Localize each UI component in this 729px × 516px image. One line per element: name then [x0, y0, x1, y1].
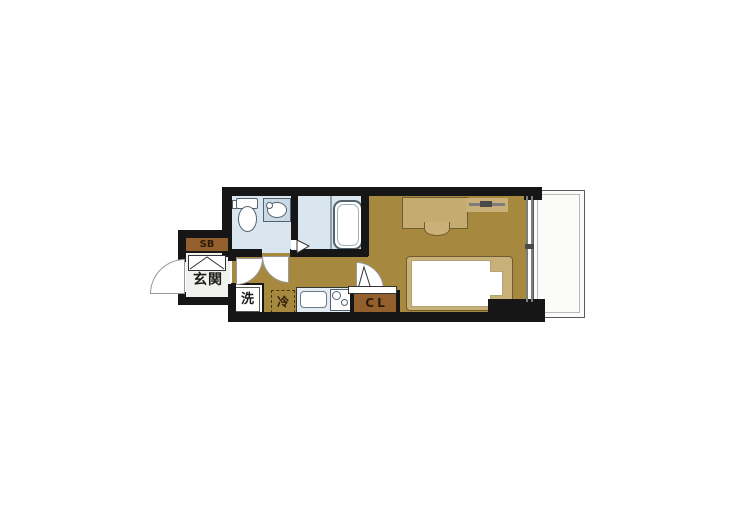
- chair: [424, 222, 450, 236]
- window-handle: [525, 244, 534, 249]
- bath-folding-door-icon: [296, 239, 311, 254]
- ac-unit-knob: [480, 201, 492, 207]
- entrance-label: 玄関: [186, 271, 230, 289]
- balcony-inner-line: [537, 194, 580, 313]
- shoe-cabinet-door-icon: [189, 256, 225, 270]
- wall-bath-right: [361, 194, 369, 256]
- wall-toilet-bath-divider: [291, 194, 298, 240]
- bathroom-divider-line: [330, 194, 332, 254]
- wall-top: [222, 187, 542, 196]
- wall-pillar-bottom-right: [488, 299, 545, 322]
- stove-burner-large: [332, 291, 341, 300]
- bed-mattress: [411, 260, 491, 307]
- closet: CL: [354, 294, 396, 312]
- window-pane-right: [531, 196, 533, 302]
- floor-plan: 冷 洗 SB CL: [0, 0, 729, 516]
- toilet-sink-faucet: [266, 202, 273, 209]
- room-door-track: [348, 286, 397, 294]
- bathtub-inner-line: [337, 204, 359, 246]
- window-pane-left: [526, 196, 528, 302]
- toilet-bowl: [238, 206, 257, 232]
- washer-label-box: 洗: [235, 287, 260, 312]
- entry-door-swing: [150, 259, 185, 294]
- stove-burner-small: [341, 299, 348, 306]
- kitchen-sink: [300, 291, 327, 308]
- shoe-box: SB: [184, 236, 230, 253]
- refrigerator-space: 冷: [271, 290, 295, 313]
- bed-pillow-notch: [490, 271, 503, 296]
